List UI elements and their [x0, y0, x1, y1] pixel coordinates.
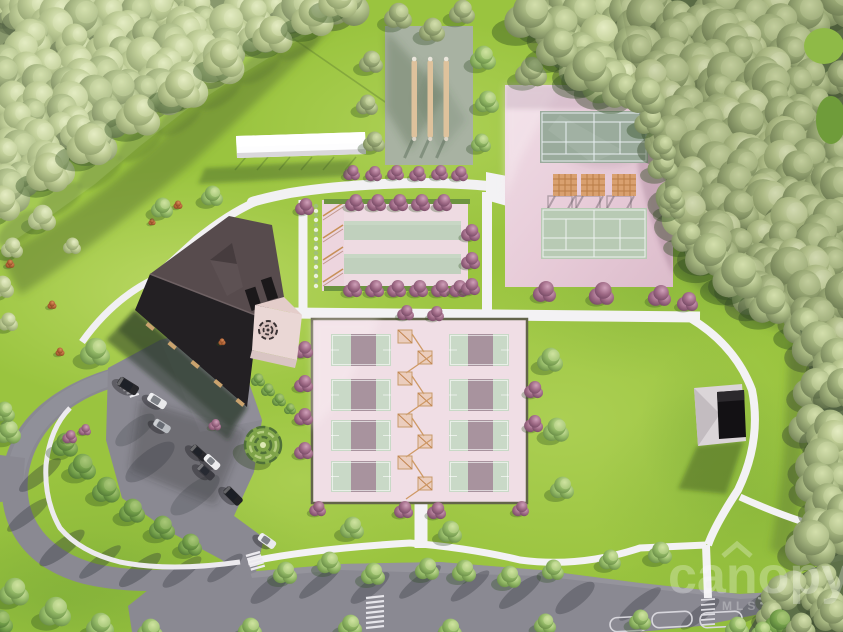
- svg-text:canopy: canopy: [668, 547, 843, 605]
- svg-text:MLS: MLS: [722, 599, 759, 613]
